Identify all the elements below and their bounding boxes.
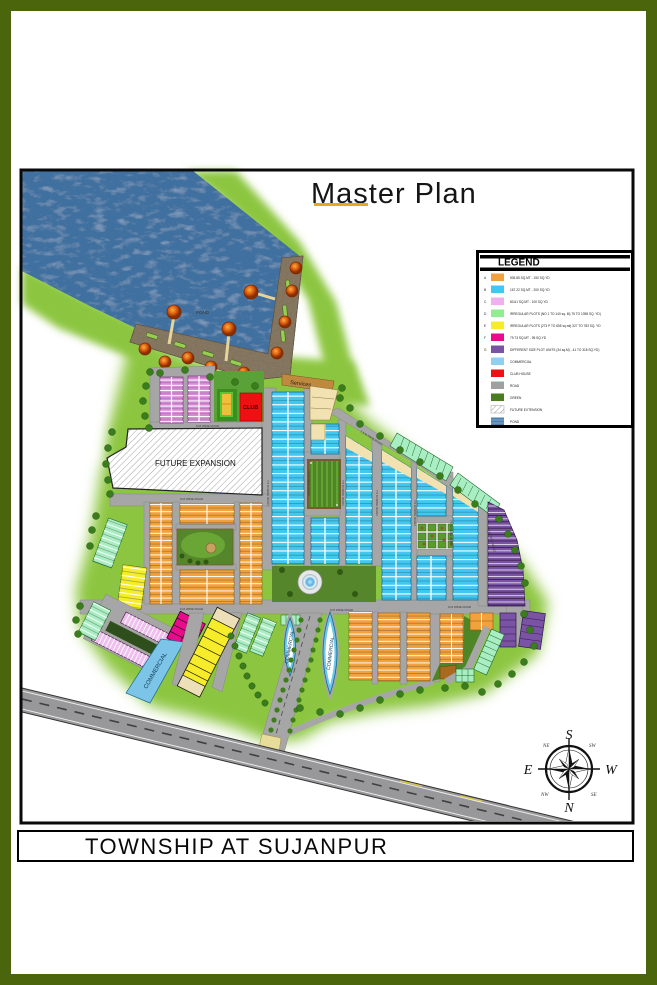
- svg-text:505.85 SQ.MT - 150 SQ.YD: 505.85 SQ.MT - 150 SQ.YD: [510, 276, 550, 280]
- svg-text:COMMERCIAL: COMMERCIAL: [510, 360, 532, 364]
- svg-text:IRREGULAR PLOTS (NO 1 TO 140 s: IRREGULAR PLOTS (NO 1 TO 140 sq. M) 75 T…: [510, 312, 601, 316]
- svg-text:79.73 SQ.MT - 95 SQ.YD: 79.73 SQ.MT - 95 SQ.YD: [510, 336, 547, 340]
- svg-text:LEGEND: LEGEND: [498, 258, 540, 269]
- svg-text:FUTURE EXTENSION: FUTURE EXTENSION: [510, 408, 543, 412]
- svg-text:B: B: [484, 288, 486, 292]
- svg-text:E: E: [484, 324, 486, 328]
- svg-text:167.22 SQ.MT - 200 SQ.YD: 167.22 SQ.MT - 200 SQ.YD: [510, 288, 550, 292]
- svg-text:CLUB HOUSE: CLUB HOUSE: [510, 372, 531, 376]
- svg-text:F: F: [484, 336, 486, 340]
- svg-text:GREEN: GREEN: [510, 396, 522, 400]
- svg-text:DIFFERENT SIZE PLOT UNITS (34: DIFFERENT SIZE PLOT UNITS (34 sq.M) - 41…: [510, 348, 599, 352]
- svg-text:83.61 SQ.MT - 100 SQ.YD: 83.61 SQ.MT - 100 SQ.YD: [510, 300, 549, 304]
- svg-text:ROAD: ROAD: [510, 384, 520, 388]
- svg-text:POND: POND: [510, 420, 520, 424]
- svg-text:IRREGULAR PLOTS (273 P TO 655: IRREGULAR PLOTS (273 P TO 655 sq.mt) 327…: [510, 324, 601, 328]
